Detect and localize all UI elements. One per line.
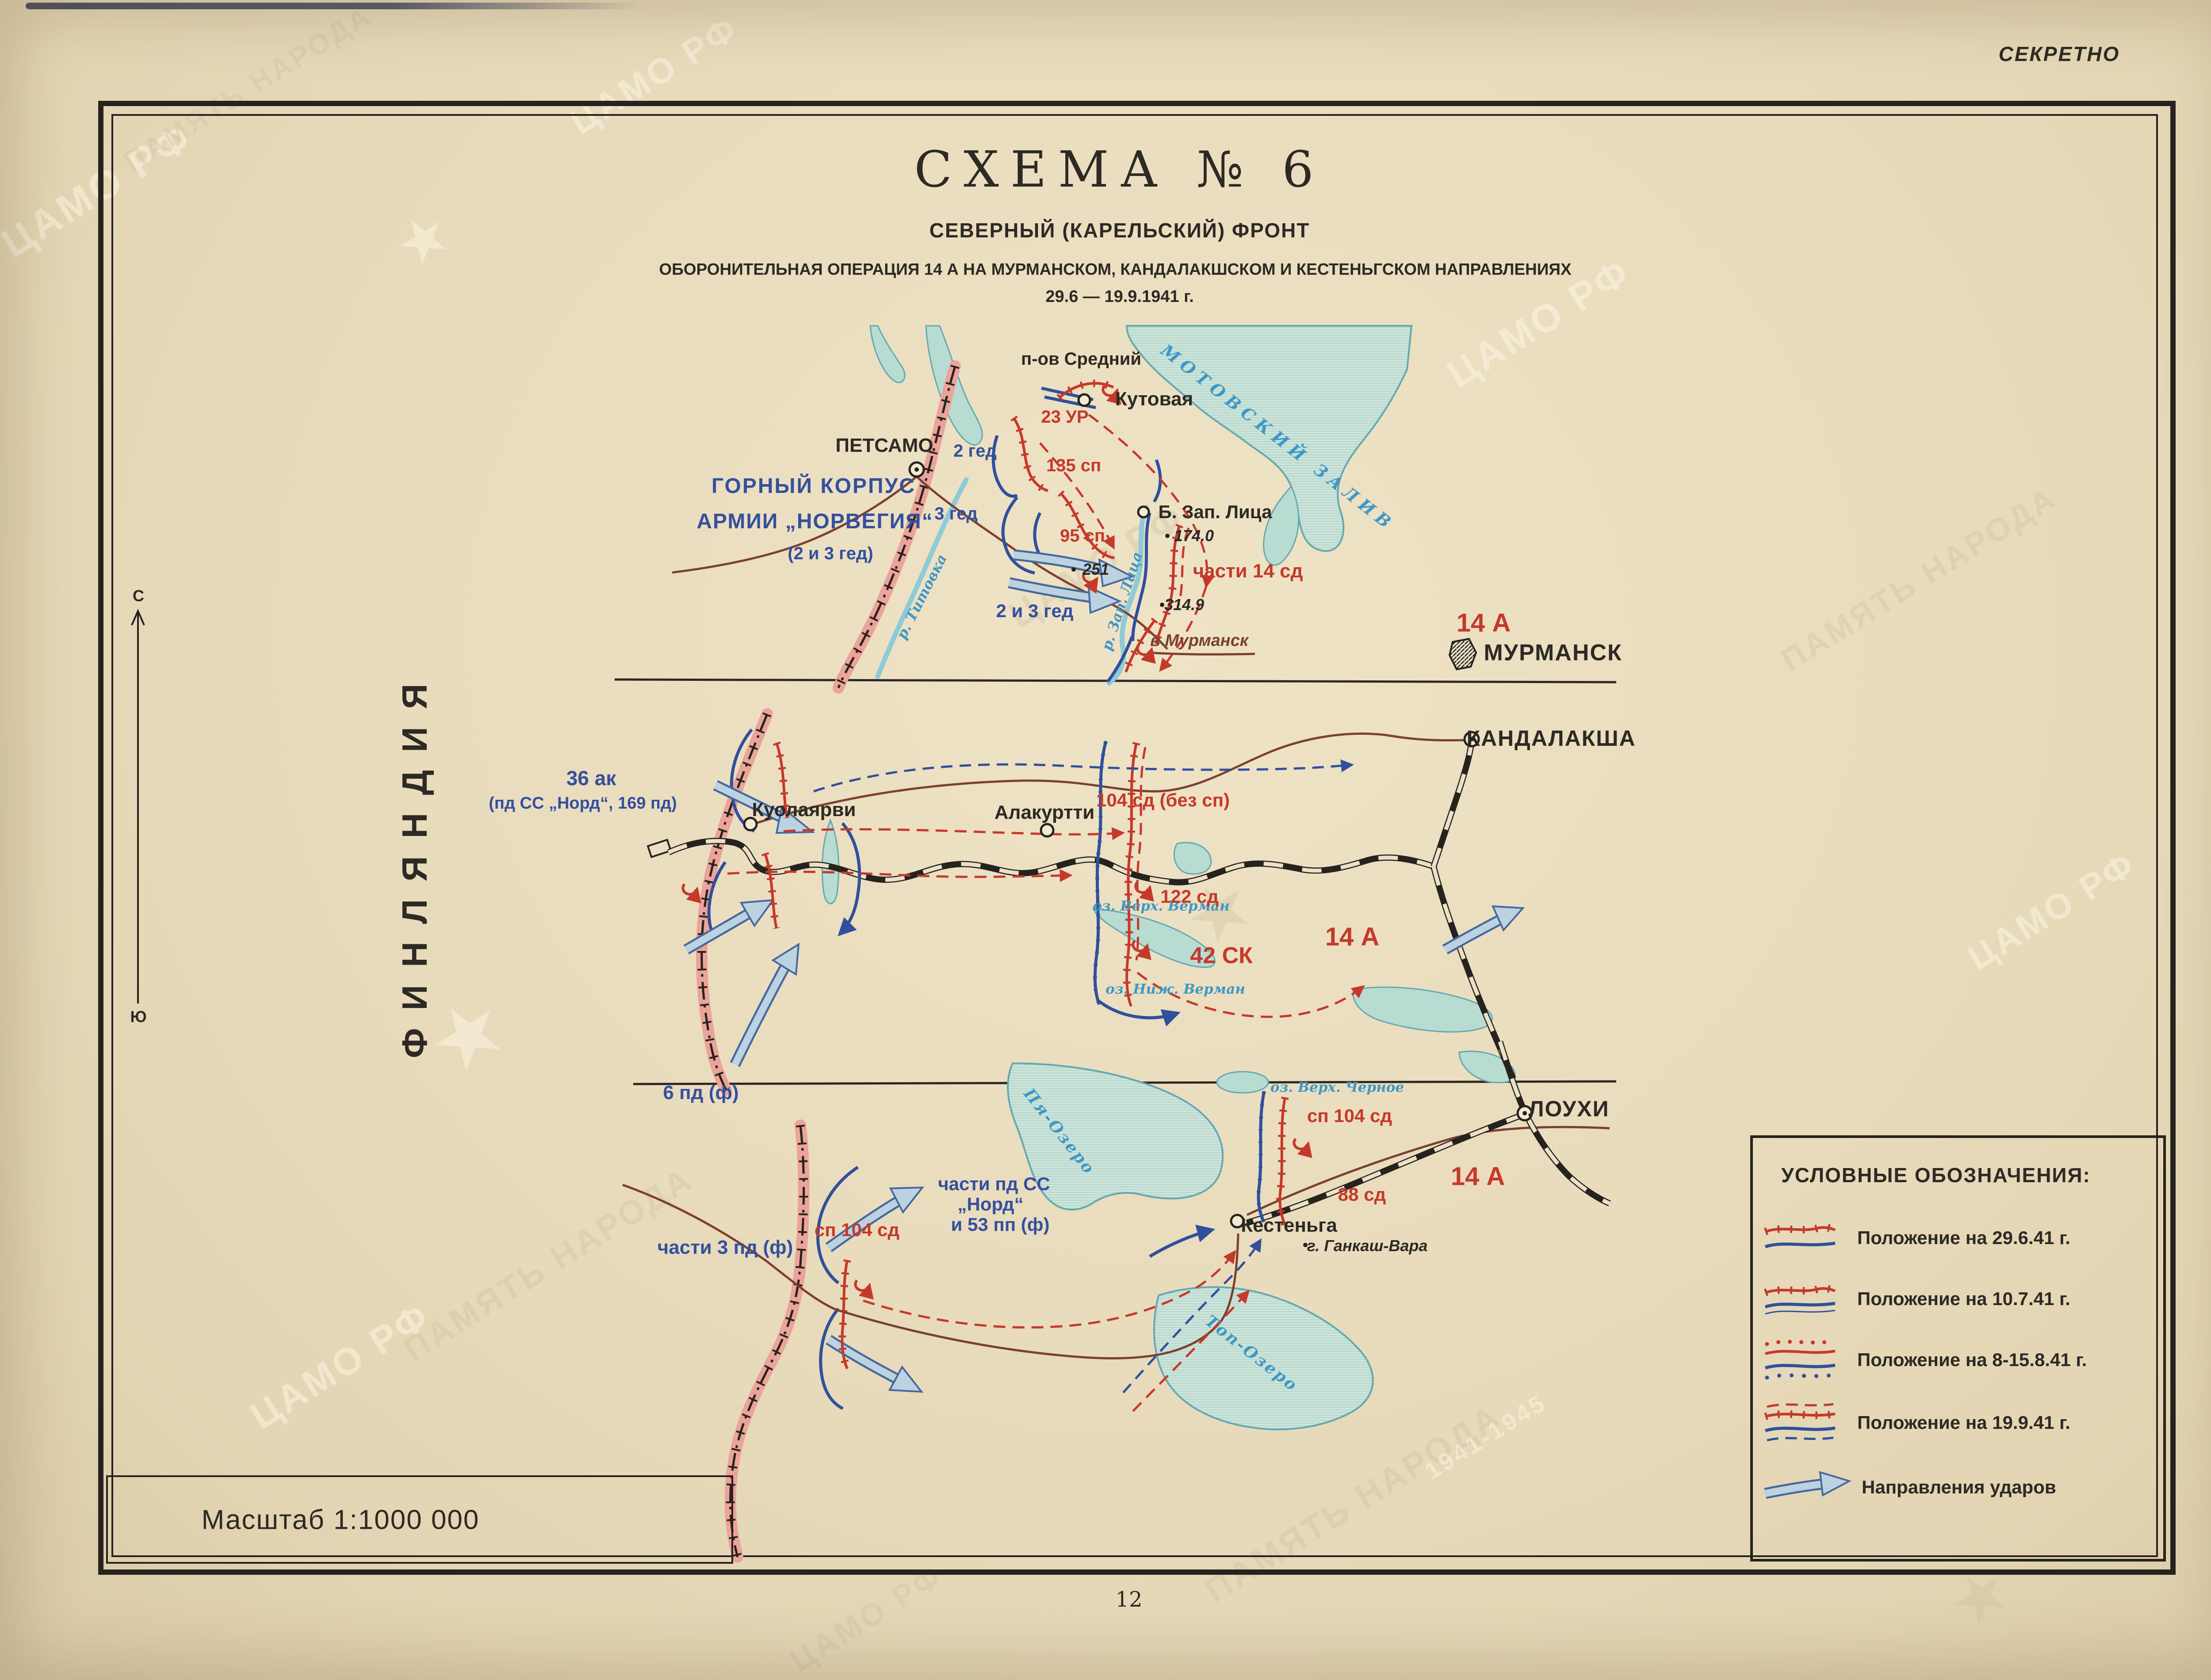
label-petsamo: ПЕТСАМО	[835, 435, 933, 456]
page-number: 12	[1115, 1588, 1142, 1611]
railway-main-dashes	[1500, 1042, 1610, 1203]
kestenga-map-art	[623, 1042, 1610, 1557]
label-14a-kandalaksha: 14 А	[1325, 924, 1380, 951]
label-kandalaksha-city: КАНДАЛАКША	[1466, 727, 1636, 750]
label-14a-kestenga: 14 А	[1451, 1164, 1505, 1191]
label-sp104-w: сп 104 сд	[815, 1220, 899, 1240]
red-curl	[855, 1280, 869, 1291]
label-mountain-corps-3: (2 и 3 гед)	[788, 544, 873, 563]
red-curl	[1294, 1139, 1308, 1149]
blue-arc-bottom	[1098, 1000, 1177, 1018]
red-curl	[683, 884, 697, 894]
legend-item-label: Положение на 19.9.41 г.	[1857, 1413, 2070, 1432]
label-ss-nord-3: и 53 пп (ф)	[951, 1215, 1049, 1234]
label-gankash-vara: г. Ганкаш-Вара	[1307, 1237, 1428, 1254]
blue-front	[1259, 1093, 1264, 1222]
label-chasti-14sd: части 14 сд	[1193, 561, 1303, 581]
label-14a-murmansk: 14 А	[1457, 610, 1511, 637]
lake-right-1	[1353, 987, 1492, 1032]
label-2i3ged: 2 и 3 гед	[996, 601, 1073, 621]
lake-kuolajarvi	[822, 820, 838, 904]
state-border-ticks	[731, 1125, 804, 1557]
legend-title: УСЛОВНЫЕ ОБОЗНАЧЕНИЯ:	[1781, 1165, 2091, 1186]
label-36ak-sub: (пд СС „Норд“, 169 пд)	[489, 795, 677, 813]
red-curl	[1137, 645, 1151, 655]
railway-to-kandalaksha	[1434, 740, 1472, 867]
town-dot	[914, 467, 919, 472]
label-135sp: 135 сп	[1046, 456, 1101, 475]
label-kutovaya: Кутовая	[1115, 389, 1193, 409]
lake-verh-chernoe	[1217, 1072, 1268, 1093]
town-symbol-alakurtti	[1041, 824, 1053, 836]
scanned-map-page: ЦАМО РФ ПАМЯТЬ НАРОДА ЦАМО РФ ЦАМО РФ ЦА…	[0, 0, 2211, 1680]
label-104sd: 104 сд (без сп)	[1096, 790, 1230, 810]
blue-hook	[840, 823, 860, 934]
label-122sd: 122 сд	[1160, 887, 1219, 906]
label-kestenga-town: Кестеньга	[1241, 1215, 1337, 1236]
blue-movement-dashed	[814, 764, 1351, 791]
legend-item-label: Направления ударов	[1862, 1478, 2056, 1497]
blue-arc-2ged	[993, 435, 1017, 496]
label-mountain-corps-1: ГОРНЫЙ КОРПУС	[711, 475, 916, 497]
label-3ged: 3 гед	[934, 504, 978, 523]
road-murmansk-underline	[1148, 653, 1255, 654]
scale-label: Масштаб 1:1000 000	[202, 1505, 480, 1534]
elevation-dot-314	[1160, 603, 1164, 607]
label-3pd: части 3 пд (ф)	[658, 1237, 793, 1258]
label-sp104-ne: сп 104 сд	[1307, 1106, 1392, 1126]
label-height-314: 314.9	[1164, 596, 1204, 613]
label-ss-nord-2: „Норд“	[957, 1195, 1023, 1214]
label-23ur: 23 УР	[1041, 408, 1088, 426]
town-symbol-bzaplitsa	[1138, 507, 1149, 517]
state-border-line	[731, 1125, 804, 1557]
city-symbol-murmansk	[1450, 639, 1476, 669]
label-lake-nizh-verman: оз. Ниж. Верман	[1105, 982, 1245, 997]
legend-item-label: Положение на 29.6.41 г.	[1857, 1228, 2070, 1248]
blue-front	[1095, 743, 1105, 1004]
label-lake-chernoe: оз. Верх. Черное	[1270, 1081, 1404, 1095]
legend-item-label: Положение на 8-15.8.41 г.	[1857, 1350, 2087, 1370]
blue-arrow-small	[1150, 1230, 1212, 1256]
label-height-251: 251	[1083, 561, 1109, 578]
railway-main	[1500, 1042, 1610, 1203]
lake-small-rail	[1174, 843, 1211, 874]
railway-end-cap	[648, 840, 671, 857]
label-peninsula-sredniy: п-ов Средний	[1021, 350, 1141, 368]
label-6pd: 6 пд (ф)	[663, 1083, 738, 1103]
label-95sp: 95 сп	[1060, 527, 1105, 545]
blue-line-river-1	[1154, 460, 1160, 502]
legend-item-label: Положение на 10.7.41 г.	[1857, 1289, 2070, 1309]
label-ss-nord-1: части пд СС	[938, 1174, 1050, 1194]
label-murmansk-city: МУРМАНСК	[1484, 641, 1622, 665]
attack-arrow	[1445, 906, 1523, 950]
legend-box	[1750, 1135, 2166, 1562]
kandalaksha-map-art	[648, 714, 1523, 1090]
label-alakurtti: Алакуртти	[995, 802, 1095, 823]
small-fjord	[870, 326, 905, 382]
label-height-174: 174.0	[1174, 527, 1214, 544]
label-b-zap-litsa: Б. Зап. Лица	[1159, 502, 1272, 522]
attack-arrow	[735, 944, 799, 1065]
label-2ged: 2 гед	[953, 442, 997, 460]
label-kuolajarvi: Куолаярви	[752, 800, 856, 820]
label-to-murmansk: в Мурманск	[1150, 632, 1248, 650]
bay-inlet	[1264, 486, 1299, 565]
town-symbol-kutovaya	[1079, 394, 1090, 406]
label-mountain-corps-2: АРМИИ „НОРВЕГИЯ“	[696, 511, 933, 533]
elevation-dot-251	[1071, 567, 1076, 572]
state-border-band	[731, 1125, 804, 1557]
city-dot	[1522, 1111, 1527, 1115]
label-42sk: 42 СК	[1190, 944, 1253, 968]
label-loukhi: ЛОУХИ	[1528, 1097, 1609, 1121]
label-88sd: 88 сд	[1338, 1185, 1386, 1204]
compass-arrow-icon	[132, 611, 144, 1004]
label-36ak: 36 ак	[566, 767, 616, 789]
elevation-dot-174	[1165, 534, 1170, 538]
